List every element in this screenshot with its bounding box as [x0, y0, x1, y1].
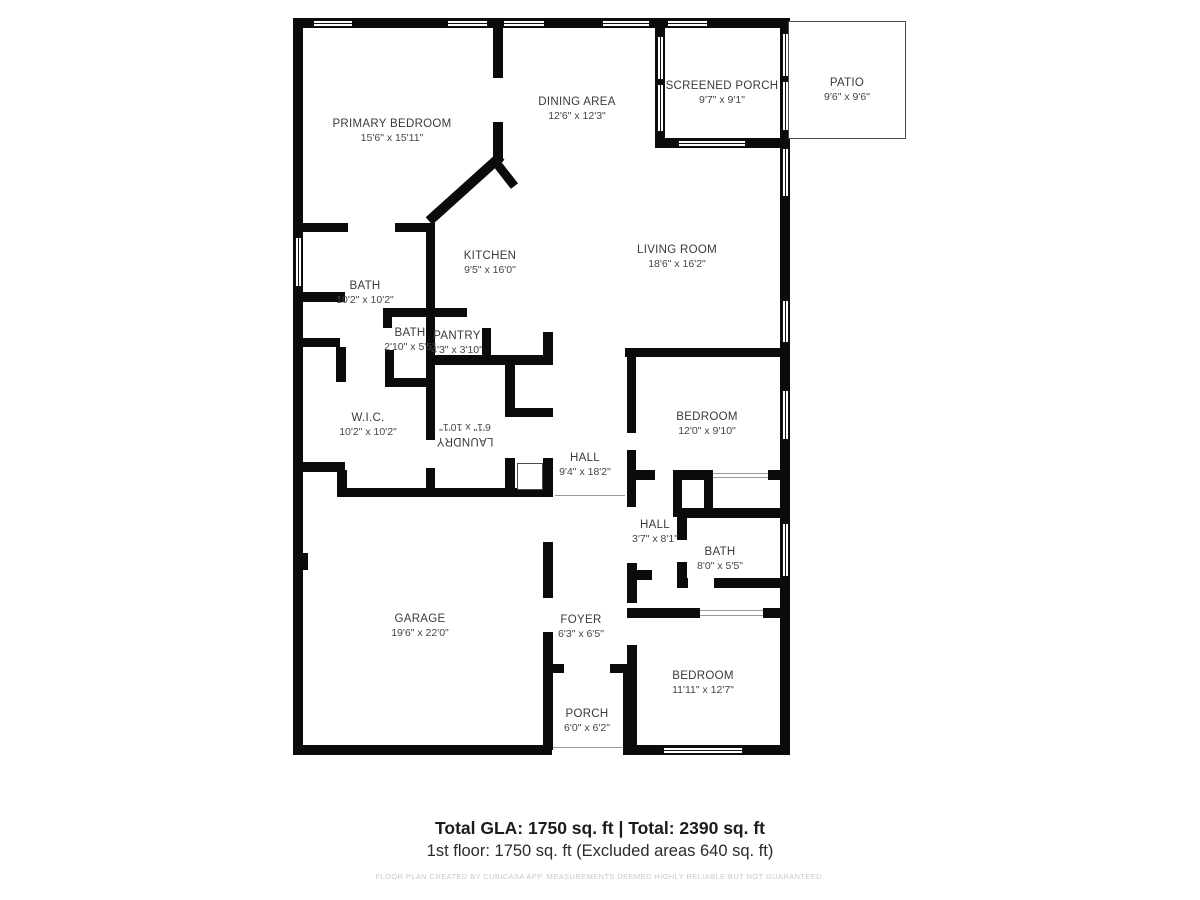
room-dimensions: 10'2" x 10'2" [339, 425, 397, 439]
wall-segment [780, 140, 790, 755]
room-name: HALL [632, 518, 678, 532]
wall-segment [627, 570, 652, 580]
wall-segment [543, 542, 553, 598]
room-dimensions: 12'6" x 12'3" [538, 109, 615, 123]
window-marker [782, 300, 789, 343]
room-dimensions: 9'4" x 18'2" [559, 465, 611, 479]
closet-outline [517, 463, 543, 490]
room-label: DINING AREA12'6" x 12'3" [538, 95, 615, 123]
room-dimensions: 11'11" x 12'7" [672, 683, 734, 697]
wall-segment [714, 578, 782, 588]
wall-segment [383, 308, 467, 317]
room-name: LAUNDRY [437, 434, 494, 448]
room-dimensions: 9'5" x 16'0" [464, 263, 517, 277]
window-marker [657, 36, 664, 80]
room-dimensions: 3'7" x 8'1" [632, 532, 678, 546]
opening-line [700, 615, 763, 616]
window-marker [782, 390, 789, 440]
room-label: BEDROOM11'11" x 12'7" [672, 669, 734, 697]
room-dimensions: 2'10" x 5'5" [384, 340, 436, 354]
room-name: PORCH [564, 707, 610, 721]
room-name: KITCHEN [464, 249, 517, 263]
wall-segment [543, 332, 553, 365]
room-label: LIVING ROOM18'6" x 16'2" [637, 243, 717, 271]
room-name: PANTRY [431, 329, 483, 343]
room-label: HALL3'7" x 8'1" [632, 518, 678, 546]
wall-segment [293, 338, 340, 347]
room-label: PATIO9'6" x 9'6" [824, 76, 870, 104]
wall-segment [543, 458, 553, 497]
window-marker [602, 20, 650, 27]
wall-segment [627, 608, 700, 618]
room-name: SCREENED PORCH [666, 79, 779, 93]
room-label: KITCHEN9'5" x 16'0" [464, 249, 517, 277]
room-dimensions: 6'1" x 10'1" [437, 420, 494, 434]
room-name: PATIO [824, 76, 870, 90]
wall-segment [543, 632, 553, 750]
room-label: BEDROOM12'0" x 9'10" [676, 410, 738, 438]
opening-line [700, 610, 763, 611]
window-marker [503, 20, 545, 27]
wall-segment [493, 28, 503, 78]
first-floor-summary: 1st floor: 1750 sq. ft (Excluded areas 6… [0, 842, 1200, 861]
room-dimensions: 9'6" x 9'6" [824, 90, 870, 104]
wall-segment [673, 470, 713, 480]
room-label: PANTRY4'3" x 3'10" [431, 329, 483, 357]
wall-segment [552, 664, 564, 673]
wall-segment [383, 308, 392, 328]
opening-line [553, 747, 623, 748]
room-dimensions: 10'2" x 10'2" [336, 293, 394, 307]
window-marker [447, 20, 488, 27]
room-label: FOYER6'3" x 6'5" [558, 613, 604, 641]
room-dimensions: 6'3" x 6'5" [558, 627, 604, 641]
wall-segment [627, 470, 655, 480]
wall-segment [505, 408, 553, 417]
room-dimensions: 6'0" x 6'2" [564, 721, 610, 735]
room-name: DINING AREA [538, 95, 615, 109]
room-name: LIVING ROOM [637, 243, 717, 257]
window-marker [667, 20, 708, 27]
room-label: PRIMARY BEDROOM15'6" x 15'11" [332, 117, 451, 145]
wall-segment [677, 578, 688, 588]
room-dimensions: 18'6" x 16'2" [637, 257, 717, 271]
wall-segment [768, 470, 782, 480]
room-dimensions: 4'3" x 3'10" [431, 343, 483, 357]
wall-segment [763, 608, 782, 618]
total-gla-title: Total GLA: 1750 sq. ft | Total: 2390 sq.… [0, 818, 1200, 839]
room-label: W.I.C.10'2" x 10'2" [339, 411, 397, 439]
wall-segment [505, 458, 515, 497]
opening-line [713, 477, 768, 478]
opening-line [713, 473, 768, 474]
window-marker [678, 140, 746, 147]
wall-segment-diagonal [492, 160, 518, 189]
wall-segment [627, 563, 637, 603]
wall-segment-diagonal [426, 152, 505, 224]
wall-segment [293, 18, 303, 755]
wall-segment [336, 347, 346, 382]
room-label: BATH8'0" x 5'5" [697, 545, 743, 573]
room-dimensions: 8'0" x 5'5" [697, 559, 743, 573]
floor-plan-page: PRIMARY BEDROOM15'6" x 15'11"DINING AREA… [0, 0, 1200, 900]
room-name: W.I.C. [339, 411, 397, 425]
window-marker [295, 237, 302, 287]
disclaimer-text: FLOOR PLAN CREATED BY CUBICASA APP. MEAS… [0, 872, 1200, 881]
room-name: PRIMARY BEDROOM [332, 117, 451, 131]
wall-segment [293, 223, 348, 232]
room-label: GARAGE19'6" x 22'0" [391, 612, 449, 640]
room-name: BEDROOM [676, 410, 738, 424]
wall-segment [293, 745, 552, 755]
opening-line [555, 495, 625, 496]
room-label: BATH10'2" x 10'2" [336, 279, 394, 307]
wall-segment [677, 508, 782, 518]
window-marker [782, 523, 789, 577]
room-name: BEDROOM [672, 669, 734, 683]
window-marker [313, 20, 353, 27]
wall-segment [300, 553, 308, 570]
wall-segment [677, 518, 687, 540]
room-dimensions: 19'6" x 22'0" [391, 626, 449, 640]
wall-segment [627, 348, 636, 433]
room-name: HALL [559, 451, 611, 465]
room-name: BATH [697, 545, 743, 559]
wall-segment [387, 378, 432, 387]
room-label: PORCH6'0" x 6'2" [564, 707, 610, 735]
window-marker [782, 148, 789, 197]
wall-segment [627, 645, 637, 755]
room-dimensions: 15'6" x 15'11" [332, 131, 451, 145]
room-name: BATH [384, 326, 436, 340]
room-name: GARAGE [391, 612, 449, 626]
room-label: HALL9'4" x 18'2" [559, 451, 611, 479]
room-name: BATH [336, 279, 394, 293]
wall-segment [625, 348, 782, 357]
room-label: BATH2'10" x 5'5" [384, 326, 436, 354]
room-dimensions: 9'7" x 9'1" [666, 93, 779, 107]
window-marker [663, 747, 743, 754]
room-label: LAUNDRY6'1" x 10'1" [437, 420, 494, 448]
room-name: FOYER [558, 613, 604, 627]
room-dimensions: 12'0" x 9'10" [676, 424, 738, 438]
room-label: SCREENED PORCH9'7" x 9'1" [666, 79, 779, 107]
window-marker [657, 84, 664, 132]
